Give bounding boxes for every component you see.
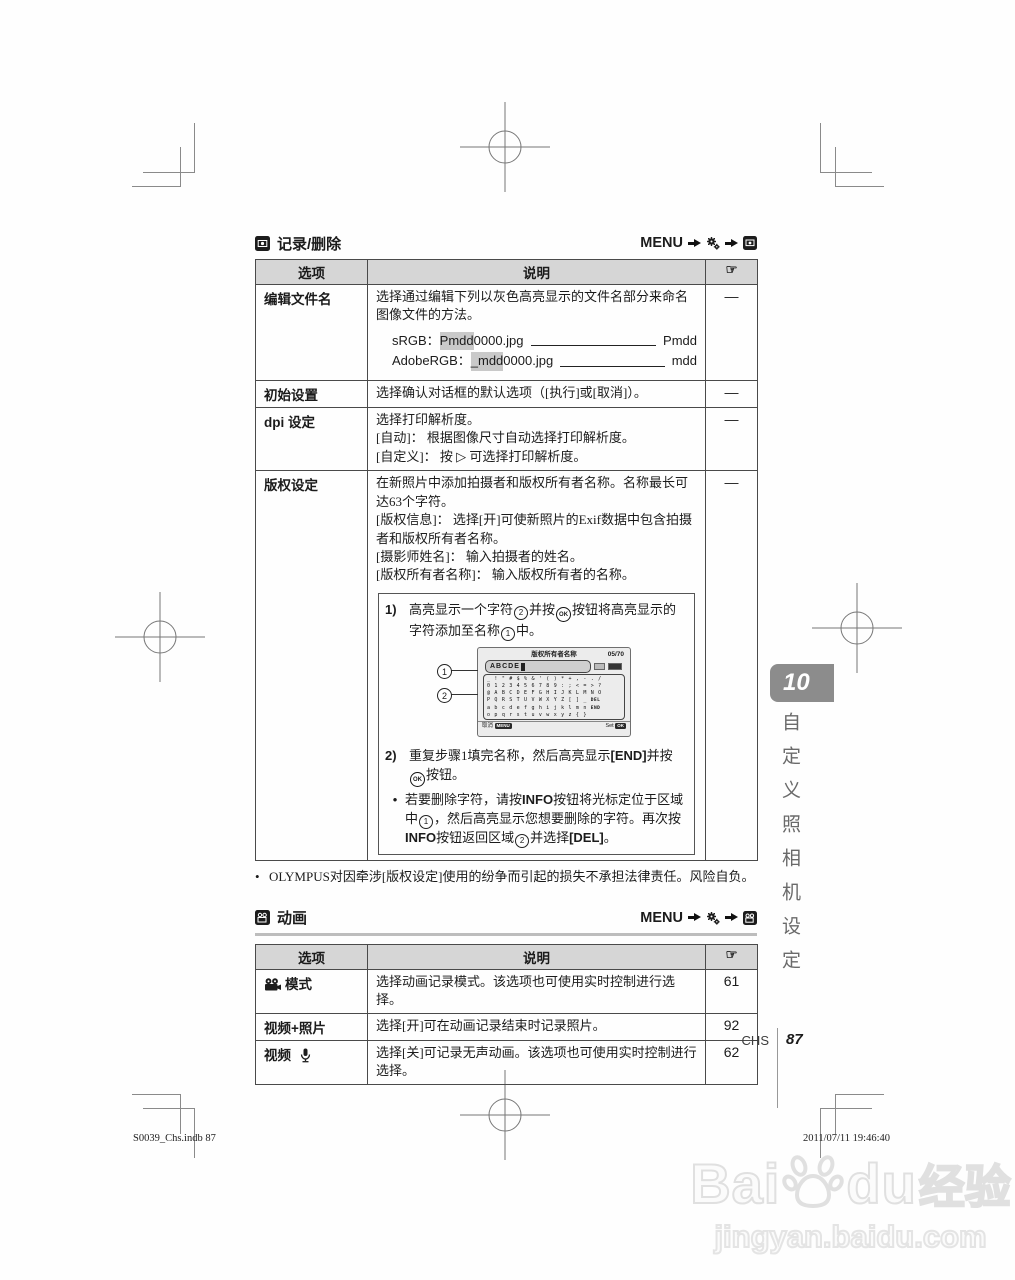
callout-2-icon: 2 [514, 606, 528, 620]
movie-tab-icon [743, 911, 757, 925]
name-input-field: ABCDE [485, 660, 591, 673]
custom-menu-gear-icon [706, 911, 720, 925]
language-label: CHS [703, 1033, 769, 1048]
delete-char-note: • 若要删除字符，请按INFO按钮将光标定位于区域中1，然后高亮显示您想要删除的… [385, 791, 685, 847]
ref-page: — [706, 285, 758, 381]
callout-1-icon: 1 [437, 664, 452, 679]
option-label: 视频 [256, 1040, 368, 1084]
table-row: dpi 设定 选择打印解析度。 [自动]： 根据图像尺寸自动选择打印解析度。 [… [256, 407, 758, 470]
pointing-hand-icon: ☞ [725, 262, 737, 277]
option-desc: 在新照片中添加拍摄者和版权所有者名称。名称最长可达63个字符。 [版权信息]： … [368, 471, 706, 861]
adobergb-filename-line: AdobeRGB： _mdd0000.jpg mdd [392, 352, 697, 370]
col-header-ref: ☞ [706, 260, 758, 285]
print-footer-timestamp: 2011/07/11 19:46:40 [735, 1133, 890, 1144]
trim-mark [835, 147, 884, 187]
ok-button-badge: OK [615, 723, 626, 729]
arrow-icon [725, 913, 738, 922]
right-triangle-icon: ▷ [456, 450, 466, 465]
record-delete-table: 选项 说明 ☞ 编辑文件名 选择通过编辑下列以灰色高亮显示的文件名部分来命名图像… [255, 259, 758, 861]
record-delete-tab-icon [743, 236, 757, 250]
ref-page: — [706, 407, 758, 470]
menu-label: MENU [640, 910, 683, 926]
option-desc: 选择确认对话框的默认选项（[执行]或[取消]）。 [368, 380, 706, 407]
section1-title: 记录/删除 [277, 233, 341, 254]
table-row: 视频+照片 选择[开]可在动画记录结束时记录照片。 92 [256, 1013, 758, 1040]
table-row: 初始设置 选择确认对话框的默认选项（[执行]或[取消]）。 — [256, 380, 758, 407]
srgb-filename-line: sRGB： Pmdd0000.jpg Pmdd [392, 332, 697, 350]
char-counter: 05/70 [608, 650, 624, 659]
option-label: 编辑文件名 [256, 285, 368, 381]
name-input-row: ABCDE [485, 660, 625, 673]
ref-page: — [706, 380, 758, 407]
ref-page: 61 [706, 969, 758, 1013]
onscreen-keyboard: _!"#$%&'()*+,-./ 0123456789:;<=>? @ABCDE… [483, 674, 625, 720]
option-desc: 选择[开]可在动画记录结束时记录照片。 [368, 1013, 706, 1040]
arrow-icon [688, 239, 701, 248]
menu-path: MENU [640, 235, 757, 251]
option-label: 版权设定 [256, 471, 368, 861]
callout-1-icon: 1 [501, 627, 515, 641]
chapter-side-title: 自定义照相机设定 [776, 712, 803, 984]
chapter-tab: 10 [770, 664, 834, 702]
col-header-option: 选项 [256, 260, 368, 285]
callout-line [450, 670, 478, 671]
pointing-hand-icon: ☞ [725, 947, 737, 962]
custom-menu-gear-icon [706, 236, 720, 250]
menu-path: MENU [640, 910, 757, 926]
camera-screen: 版权所有者名称 05/70 ABCDE _!"#$%&'()*+,-./ [477, 647, 631, 737]
info-button-icon [608, 663, 622, 670]
movie-tab-icon [255, 910, 270, 925]
leader-line [560, 366, 665, 367]
option-label: 初始设置 [256, 380, 368, 407]
text-cursor [521, 663, 525, 671]
screen-title: 版权所有者名称 05/70 [478, 648, 630, 659]
step-1: 1) 高亮显示一个字符2并按OK按钮将高亮显示的字符添加至名称1中。 [385, 601, 685, 642]
ok-button-icon: OK [556, 607, 571, 622]
keyboard-toggle-icon [594, 663, 605, 670]
arrow-icon [725, 239, 738, 248]
print-footer-filename: S0039_Chs.indb 87 [133, 1133, 216, 1144]
option-desc: 选择打印解析度。 [自动]： 根据图像尺寸自动选择打印解析度。 [自定义]： 按… [368, 407, 706, 470]
microphone-icon [300, 1048, 311, 1063]
movie-camera-icon [264, 978, 281, 991]
record-delete-tab-icon [255, 236, 270, 251]
menu-label: MENU [640, 235, 683, 251]
table-row: 模式 选择动画记录模式。该选项也可使用实时控制进行选择。 61 [256, 969, 758, 1013]
arrow-icon [688, 913, 701, 922]
del-key: DEL [591, 698, 601, 703]
page-number-divider [777, 1028, 778, 1108]
option-label: 视频+照片 [256, 1013, 368, 1040]
col-header-desc: 说明 [368, 944, 706, 969]
registration-mark [460, 102, 550, 192]
col-header-ref: ☞ [706, 944, 758, 969]
table-row: 编辑文件名 选择通过编辑下列以灰色高亮显示的文件名部分来命名图像文件的方法。 s… [256, 285, 758, 381]
end-key: END [591, 706, 601, 711]
screen-bottom-bar: 取消 MENU Set OK [478, 721, 630, 731]
olympus-disclaimer-note: • OLYMPUS对因牵涉[版权设定]使用的纷争而引起的损失不承担法律责任。风险… [255, 868, 757, 886]
section2-title: 动画 [277, 907, 307, 928]
callout-line [450, 694, 478, 695]
col-header-option: 选项 [256, 944, 368, 969]
section2-header: 动画 MENU [255, 906, 757, 936]
step-2: 2) 重复步骤1填完名称，然后高亮显示[END]并按OK按钮。 [385, 747, 685, 787]
movie-table: 选项 说明 ☞ 模式 选择动画记录模式。该选项也可使用实时控制进行选择。 61 … [255, 944, 758, 1085]
option-label: dpi 设定 [256, 407, 368, 470]
trim-mark [835, 1094, 884, 1134]
copyright-name-entry-figure: 1 2 版权所有者名称 05/70 ABCDE [437, 647, 687, 739]
ref-page: — [706, 471, 758, 861]
callout-2-icon: 2 [437, 688, 452, 703]
page-number: 87 [786, 1031, 803, 1048]
option-desc: 选择[关]可记录无声动画。该选项也可使用实时控制进行选择。 [368, 1040, 706, 1084]
option-label: 模式 [256, 969, 368, 1013]
table-header-row: 选项 说明 ☞ [256, 260, 758, 285]
trim-mark [132, 1094, 181, 1134]
content-column: 记录/删除 MENU 选项 说明 ☞ [255, 231, 757, 1085]
leader-line [531, 345, 657, 346]
option-desc: 选择通过编辑下列以灰色高亮显示的文件名部分来命名图像文件的方法。 sRGB： P… [368, 285, 706, 381]
registration-mark [812, 583, 902, 673]
baidu-jingyan-watermark: Bai du 经验 jingyan.baidu.com [688, 1150, 1013, 1255]
table-row: 视频 选择[关]可记录无声动画。该选项也可使用实时控制进行选择。 62 [256, 1040, 758, 1084]
ok-button-icon: OK [410, 772, 425, 787]
trim-mark [132, 147, 181, 187]
section1-header: 记录/删除 MENU [255, 231, 757, 255]
registration-mark [115, 592, 205, 682]
menu-button-badge: MENU [495, 723, 512, 729]
table-row: 版权设定 在新照片中添加拍摄者和版权所有者名称。名称最长可达63个字符。 [版权… [256, 471, 758, 861]
baidu-paw-icon [782, 1150, 844, 1217]
callout-1-icon: 1 [419, 815, 433, 829]
option-desc: 选择动画记录模式。该选项也可使用实时控制进行选择。 [368, 969, 706, 1013]
col-header-desc: 说明 [368, 260, 706, 285]
copyright-steps-box: 1) 高亮显示一个字符2并按OK按钮将高亮显示的字符添加至名称1中。 1 2 [378, 593, 695, 855]
table-header-row: 选项 说明 ☞ [256, 944, 758, 969]
callout-2-icon: 2 [515, 834, 529, 848]
manual-page: 记录/删除 MENU 选项 说明 ☞ [0, 0, 1015, 1280]
